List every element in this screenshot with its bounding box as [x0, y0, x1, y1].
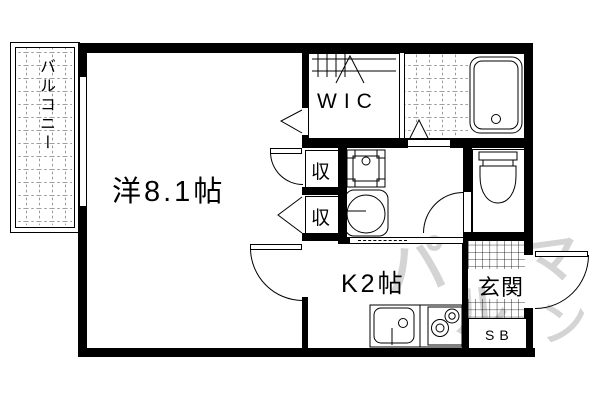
bathroom-box [404, 53, 526, 139]
wall-washroom-top-right [450, 138, 533, 148]
wic-folding-door-icon [281, 110, 302, 133]
sliding-door-track [358, 240, 407, 241]
toilet-room-box [472, 149, 526, 233]
wall-top [78, 43, 533, 53]
gas-stove-icon [428, 307, 462, 345]
wall-slide-anchor [338, 237, 350, 244]
main-room-label: 洋8.1帖 [112, 168, 225, 210]
entrance-label: 玄関 [478, 270, 524, 302]
balcony-label: バルコニー [33, 58, 57, 153]
entrance-tile-pattern [468, 241, 525, 269]
wall-bottom [78, 348, 535, 357]
wall-toilet-bottom [463, 233, 533, 241]
kitchen-label: K2帖 [341, 264, 406, 300]
wall-toilet-left [463, 148, 472, 192]
washbasin-icon [345, 190, 388, 236]
wic-label: WIC [317, 90, 379, 114]
floorplan-canvas: パ ル マ ン [0, 0, 600, 400]
wall-washroom-top-left [302, 138, 408, 148]
wall-center-d [302, 297, 308, 348]
shoe-box-label: SB [485, 327, 514, 343]
wall-closet-divider [302, 187, 338, 195]
closet-upper-label: 収 [311, 157, 330, 184]
kitchen-washroom-sliding-door [350, 237, 463, 244]
toilet-door-leaf [463, 192, 472, 232]
closet-folding-door-icon [278, 197, 302, 233]
washing-machine-pan-icon [347, 150, 385, 187]
closet-lower-label: 収 [311, 203, 330, 230]
bathroom-doorway [408, 139, 450, 147]
